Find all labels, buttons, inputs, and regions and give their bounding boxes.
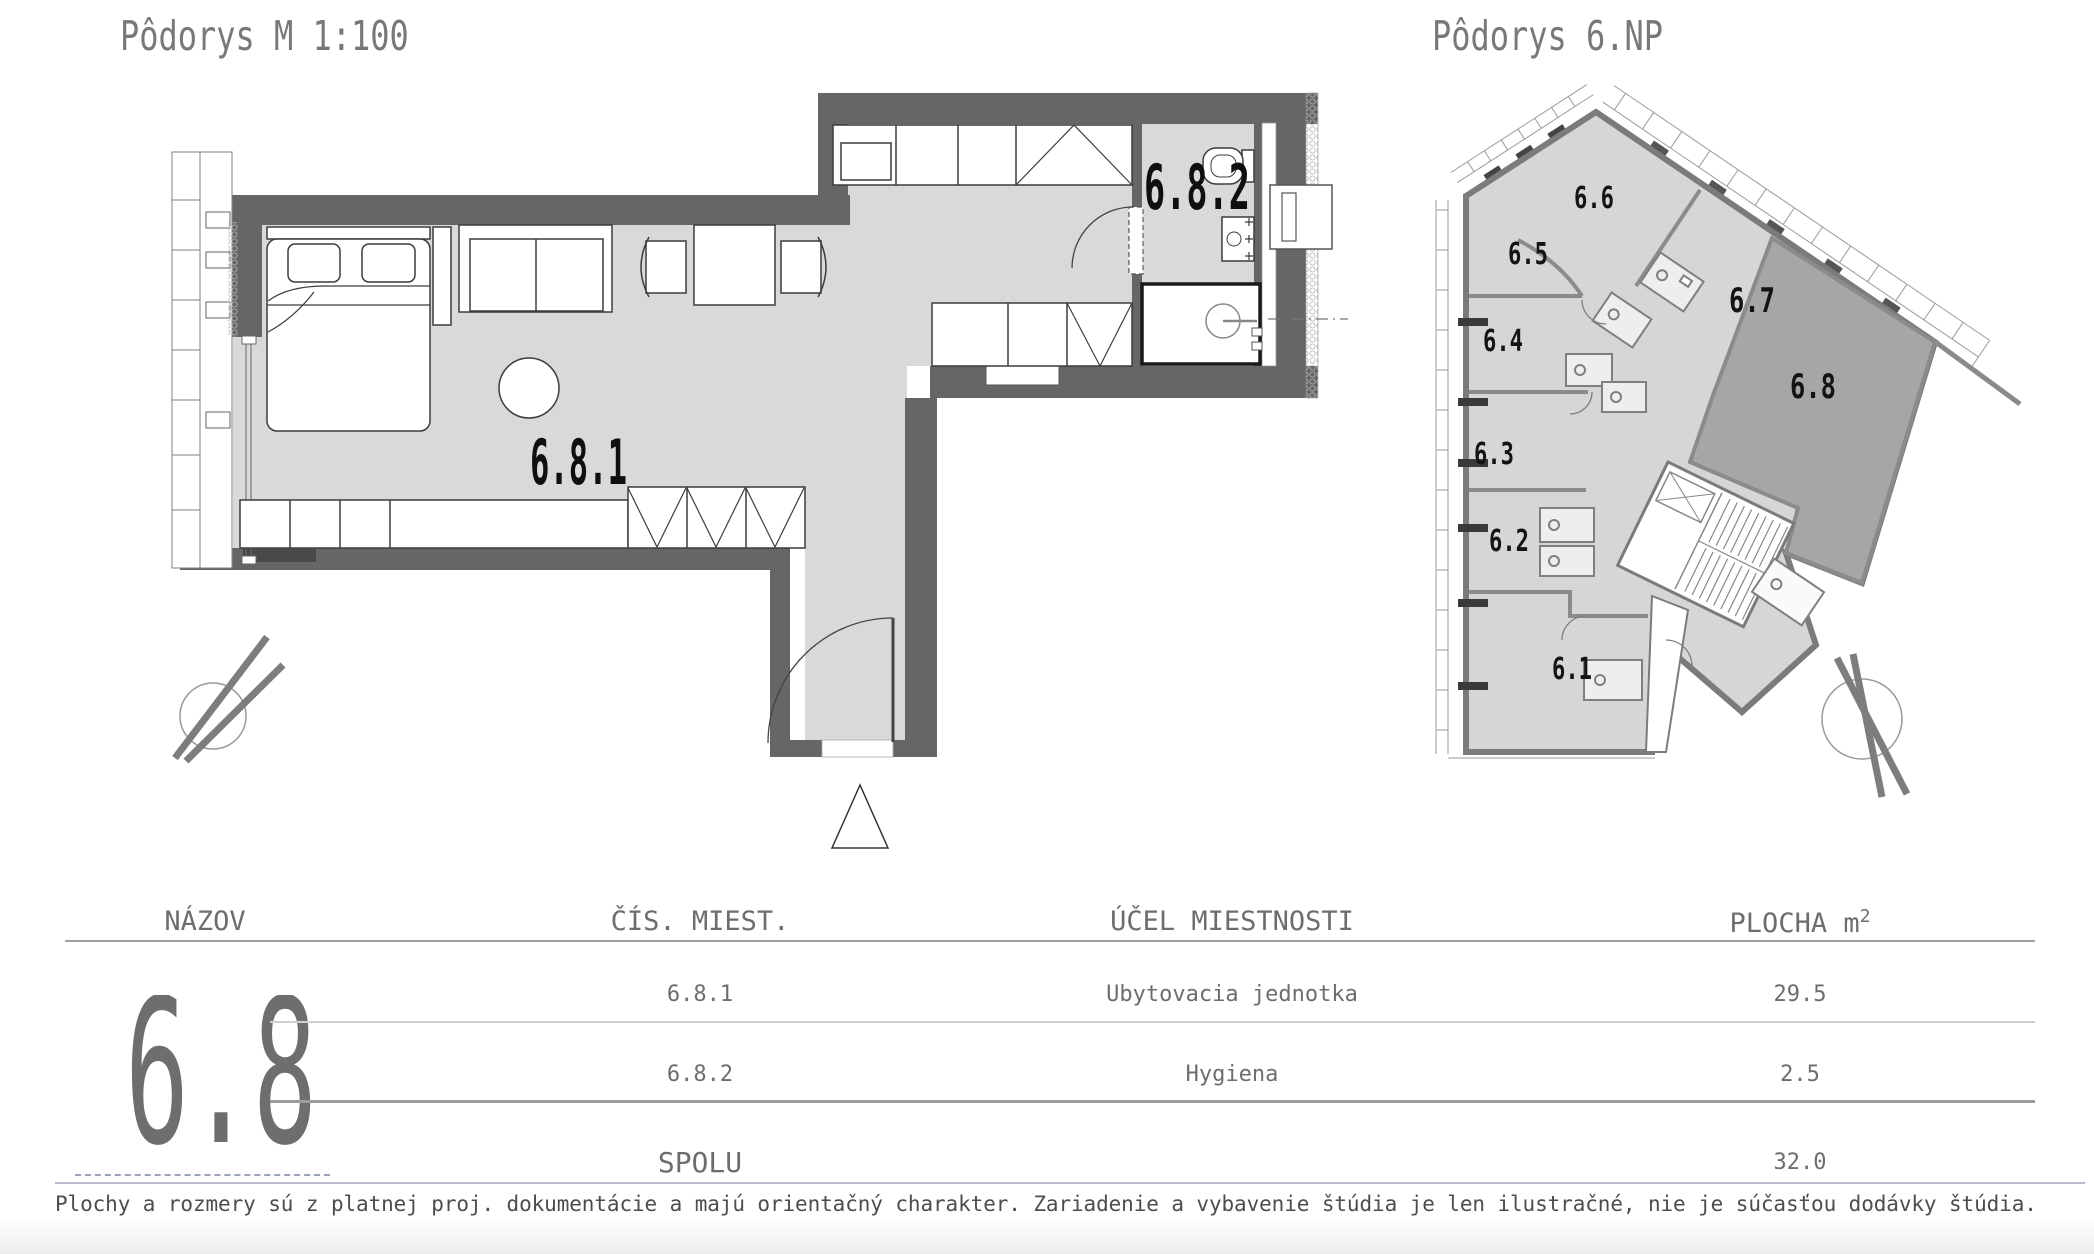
room-label-main: 6.8.1 — [530, 426, 627, 499]
total-label: SPOLU — [380, 1146, 1020, 1179]
bed — [267, 227, 430, 431]
row1-area: 29.5 — [1690, 982, 1910, 1007]
footer-divider-line — [55, 1182, 2085, 1184]
unit-label-6-6: 6.6 — [1574, 181, 1614, 216]
col-header-purpose: ÚČEL MIESTNOSTI — [1060, 906, 1404, 937]
bathroom-door-leaf — [1129, 207, 1143, 274]
kitchen-cabinets-top — [833, 125, 1132, 185]
kitchen-cabinets-mid — [932, 303, 1132, 366]
disclaimer-text: Plochy a rozmery sú z platnej proj. doku… — [55, 1192, 2037, 1216]
row2-purpose: Hygiena — [1060, 1062, 1404, 1087]
row1-purpose: Ubytovacia jednotka — [1060, 982, 1404, 1007]
unit-label-6-7: 6.7 — [1729, 281, 1775, 321]
nightstand — [433, 227, 451, 325]
row1-room-no: 6.8.1 — [380, 982, 1020, 1007]
unit-label-6-3: 6.3 — [1474, 437, 1514, 472]
unit-label-6-8: 6.8 — [1790, 367, 1836, 407]
footer-dashed-line — [75, 1174, 330, 1176]
floorplan-sheet: Pôdorys M 1:100 Pôdorys 6.NP — [0, 0, 2094, 1254]
wardrobe-zigzag — [628, 487, 805, 548]
room-label-bath: 6.8.2 — [1144, 151, 1250, 224]
table-row-divider — [270, 1021, 2035, 1023]
table-header-divider — [65, 940, 2035, 942]
area-superscript: 2 — [1860, 906, 1871, 927]
corridor-strip — [1646, 596, 1688, 752]
unit-label-6-5: 6.5 — [1508, 237, 1548, 272]
shower — [1142, 284, 1262, 364]
col-header-name: NÁZOV — [65, 906, 345, 937]
section-compass-left — [175, 637, 283, 761]
unit-number: 6.8 — [125, 995, 317, 1150]
unit-label-6-2: 6.2 — [1489, 524, 1529, 559]
overview-plan: 6.1 6.2 6.3 6.4 6.5 6.6 6.7 6.8 — [1436, 85, 2020, 797]
kitchen-sink — [841, 143, 891, 180]
entrance-triangle-marker — [832, 785, 888, 848]
total-area: 32.0 — [1690, 1150, 1910, 1175]
col-header-area: PLOCHA m2 — [1690, 906, 1910, 939]
table-total-divider — [270, 1100, 2035, 1103]
unit-label-6-4: 6.4 — [1483, 324, 1523, 359]
unit-label-6-1: 6.1 — [1552, 652, 1592, 687]
section-cut-line — [1930, 338, 2020, 404]
unit-number-graphic: 6.8 — [125, 995, 335, 1150]
row2-room-no: 6.8.2 — [380, 1062, 1020, 1087]
section-compass-right — [1822, 654, 1907, 797]
round-rug — [499, 358, 559, 418]
bottom-gradient — [0, 1216, 2094, 1254]
detail-plan: 6.8.1 6.8.2 — [172, 93, 1348, 848]
col-header-room-no: ČÍS. MIEST. — [380, 906, 1020, 937]
pillow — [362, 244, 415, 282]
pillow — [288, 244, 340, 282]
row2-area: 2.5 — [1690, 1062, 1910, 1087]
sofa — [459, 225, 612, 312]
wall-niche — [986, 366, 1059, 385]
bottom-cabinets — [240, 500, 628, 548]
